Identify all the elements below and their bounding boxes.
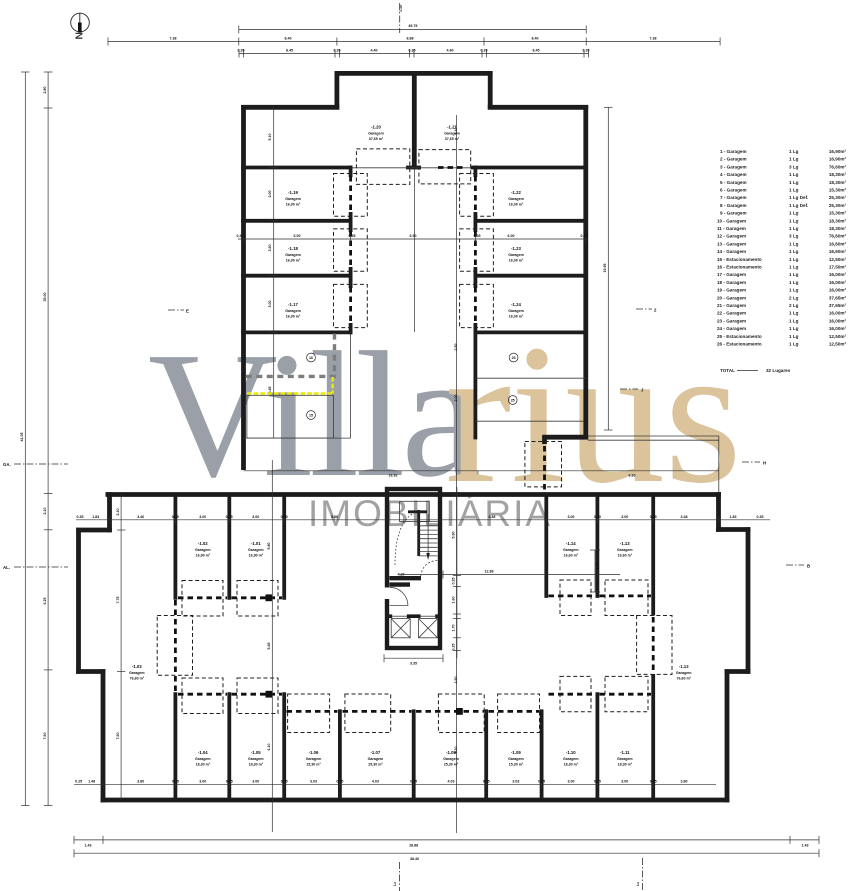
svg-text:16,00m²: 16,00m²	[829, 311, 847, 316]
svg-text:3.00: 3.00	[252, 779, 259, 783]
svg-text:7.60: 7.60	[116, 733, 120, 740]
svg-text:18 - Garagem: 18 - Garagem	[717, 280, 746, 285]
svg-text:12,50m²: 12,50m²	[829, 257, 847, 262]
svg-text:Garagem: Garagem	[368, 132, 384, 136]
svg-text:4.40: 4.40	[447, 49, 454, 53]
svg-text:0.35: 0.35	[226, 515, 233, 519]
svg-text:Garagem: Garagem	[443, 757, 459, 761]
svg-text:6.80: 6.80	[629, 474, 636, 478]
svg-text:8.45: 8.45	[533, 49, 540, 53]
svg-text:1 - Garagem: 1 - Garagem	[720, 149, 747, 154]
svg-text:4.03: 4.03	[448, 779, 455, 783]
svg-text:37,65 m²: 37,65 m²	[369, 137, 384, 141]
svg-text:1 Lg: 1 Lg	[789, 226, 799, 231]
svg-text:0.35: 0.35	[481, 49, 488, 53]
svg-text:18,30 m²: 18,30 m²	[249, 763, 264, 767]
svg-text:1 Lg: 1 Lg	[789, 180, 799, 185]
svg-text:1 Lg: 1 Lg	[789, 318, 799, 323]
svg-text:16,00 m²: 16,00 m²	[509, 259, 524, 263]
svg-text:0.35: 0.35	[594, 779, 601, 783]
svg-text:-1.18: -1.18	[288, 246, 298, 251]
svg-text:Garagem: Garagem	[195, 757, 211, 761]
svg-text:3.00: 3.00	[621, 779, 628, 783]
svg-text:16,00m²: 16,00m²	[829, 318, 847, 323]
svg-text:Garagem: Garagem	[508, 253, 524, 257]
svg-text:N: N	[73, 32, 85, 40]
svg-text:GA.: GA.	[3, 462, 11, 467]
svg-text:16,60 m²: 16,60 m²	[618, 554, 633, 558]
svg-text:2.50: 2.50	[454, 677, 458, 684]
svg-text:3.00: 3.00	[268, 191, 272, 198]
svg-text:16,00 m²: 16,00 m²	[509, 203, 524, 207]
svg-text:-1.11: -1.11	[620, 750, 630, 755]
svg-text:-1.09: -1.09	[511, 750, 521, 755]
svg-text:15,30 m²: 15,30 m²	[306, 763, 321, 767]
svg-text:41.05: 41.05	[20, 433, 24, 442]
svg-text:16,00 m²: 16,00 m²	[286, 203, 301, 207]
svg-text:3.00: 3.00	[568, 515, 575, 519]
svg-text:1 Lg: 1 Lg	[789, 272, 799, 277]
svg-text:18,30 m²: 18,30 m²	[564, 763, 579, 767]
svg-text:76,60m²: 76,60m²	[829, 164, 847, 169]
svg-text:0.35: 0.35	[336, 779, 343, 783]
svg-text:3 - Garagem: 3 - Garagem	[720, 164, 747, 169]
svg-text:1.48: 1.48	[88, 779, 95, 783]
svg-text:6.10: 6.10	[454, 747, 458, 754]
svg-text:16: 16	[309, 356, 313, 360]
svg-text:IMOBILIÁRIA: IMOBILIÁRIA	[308, 493, 552, 534]
svg-text:2.00: 2.00	[454, 395, 458, 402]
svg-text:11 - Garagem: 11 - Garagem	[717, 226, 746, 231]
svg-text:-1.24: -1.24	[511, 302, 521, 307]
svg-text:Garagem: Garagem	[129, 671, 145, 675]
svg-text:8.40: 8.40	[532, 37, 539, 41]
svg-text:1 Lg: 1 Lg	[789, 288, 799, 293]
svg-text:-1.12: -1.12	[679, 664, 689, 669]
svg-text:-1.07: -1.07	[371, 750, 381, 755]
svg-text:3.00: 3.00	[199, 779, 206, 783]
svg-text:12.88: 12.88	[485, 570, 494, 574]
svg-text:19 - Garagem: 19 - Garagem	[717, 288, 746, 293]
svg-text:24 - Garagem: 24 - Garagem	[717, 326, 746, 331]
svg-text:-1.22: -1.22	[511, 190, 521, 195]
svg-text:-1.06: -1.06	[309, 750, 319, 755]
svg-text:16 - Estacionamento: 16 - Estacionamento	[717, 265, 762, 270]
svg-text:7 - Garagem: 7 - Garagem	[720, 195, 747, 200]
svg-text:15: 15	[309, 414, 313, 418]
svg-text:Garagem: Garagem	[563, 757, 579, 761]
svg-text:4.03: 4.03	[372, 779, 379, 783]
svg-text:TOTAL: TOTAL	[720, 368, 735, 373]
svg-text:0.25: 0.25	[452, 644, 456, 651]
svg-text:-1.13: -1.13	[620, 541, 630, 546]
svg-text:49.75: 49.75	[408, 24, 417, 28]
svg-text:25: 25	[511, 399, 515, 403]
svg-text:15,30 m²: 15,30 m²	[509, 763, 524, 767]
svg-text:16.92: 16.92	[389, 474, 398, 478]
svg-text:76,60m²: 76,60m²	[829, 234, 847, 239]
svg-text:1.83: 1.83	[730, 515, 737, 519]
svg-text:8.88: 8.88	[407, 37, 414, 41]
svg-text:H: H	[763, 461, 766, 466]
svg-text:6.00: 6.00	[294, 234, 301, 238]
svg-text:Garagem: Garagem	[368, 757, 384, 761]
svg-text:Garagem: Garagem	[285, 197, 301, 201]
svg-text:E: E	[186, 309, 189, 314]
svg-text:Garagem: Garagem	[248, 757, 264, 761]
svg-text:0.35: 0.35	[410, 779, 417, 783]
svg-text:3.03: 3.03	[512, 779, 519, 783]
svg-text:6.25: 6.25	[43, 598, 47, 605]
svg-text:3.60: 3.60	[268, 245, 272, 252]
svg-text:-1.01: -1.01	[251, 541, 261, 546]
svg-text:1 Lg: 1 Lg	[789, 326, 799, 331]
svg-text:5.10: 5.10	[268, 134, 272, 141]
svg-text:76,60 m²: 76,60 m²	[130, 677, 145, 681]
svg-text:7.75: 7.75	[116, 597, 120, 604]
svg-text:6 - Garagem: 6 - Garagem	[720, 188, 747, 193]
svg-text:0.35: 0.35	[581, 234, 588, 238]
svg-text:Garagem: Garagem	[508, 197, 524, 201]
svg-text:3.00: 3.00	[199, 515, 206, 519]
svg-text:1 Lg: 1 Lg	[789, 342, 799, 347]
svg-text:37,65 m²: 37,65 m²	[445, 137, 460, 141]
svg-text:8 - Garagem: 8 - Garagem	[720, 203, 747, 208]
svg-text:0.35: 0.35	[349, 234, 356, 238]
svg-text:3.00: 3.00	[621, 515, 628, 519]
svg-text:1 Lg: 1 Lg	[789, 188, 799, 193]
svg-text:15.95: 15.95	[603, 264, 607, 273]
svg-text:-1.02: -1.02	[198, 541, 208, 546]
svg-text:2.80: 2.80	[43, 87, 47, 94]
svg-text:2 - Garagem: 2 - Garagem	[720, 157, 747, 162]
svg-text:23 - Garagem: 23 - Garagem	[717, 318, 746, 323]
svg-text:12 - Garagem: 12 - Garagem	[717, 234, 746, 239]
svg-text:3.35: 3.35	[410, 662, 417, 666]
svg-text:1 Lg: 1 Lg	[789, 280, 799, 285]
svg-text:0.35: 0.35	[281, 515, 288, 519]
svg-text:2.50: 2.50	[454, 344, 458, 351]
svg-text:17,50m²: 17,50m²	[829, 265, 847, 270]
svg-text:3.46: 3.46	[137, 515, 144, 519]
svg-text:Garagem: Garagem	[508, 309, 524, 313]
svg-text:1 Lg: 1 Lg	[789, 172, 799, 177]
svg-text:1 Lg: 1 Lg	[789, 211, 799, 216]
svg-text:7.60: 7.60	[43, 733, 47, 740]
svg-text:16,60m²: 16,60m²	[829, 241, 847, 246]
svg-text:Garagem: Garagem	[195, 548, 211, 552]
svg-text:28.88: 28.88	[409, 844, 418, 848]
svg-text:26: 26	[512, 356, 516, 360]
svg-text:25,30m²: 25,30m²	[829, 203, 847, 208]
svg-text:1 Lg: 1 Lg	[789, 157, 799, 162]
svg-text:37,65m²: 37,65m²	[829, 295, 847, 300]
svg-text:13 - Garagem: 13 - Garagem	[717, 241, 746, 246]
svg-text:1 Lg: 1 Lg	[789, 334, 799, 339]
svg-text:-1.10: -1.10	[566, 750, 576, 755]
svg-text:0.35: 0.35	[474, 234, 481, 238]
svg-text:0.35: 0.35	[650, 779, 657, 783]
svg-text:1.60: 1.60	[452, 597, 456, 604]
svg-text:-1.04: -1.04	[198, 750, 208, 755]
svg-text:16,90 m²: 16,90 m²	[249, 554, 264, 558]
svg-text:3.80: 3.80	[137, 779, 144, 783]
svg-text:Garagem: Garagem	[285, 309, 301, 313]
svg-text:3.48: 3.48	[488, 515, 495, 519]
svg-text:1 Lg Def.: 1 Lg Def.	[789, 195, 808, 200]
svg-text:0.35: 0.35	[757, 515, 764, 519]
svg-text:Lc: Lc	[636, 882, 640, 886]
svg-text:1.43: 1.43	[85, 844, 92, 848]
svg-text:3.00: 3.00	[252, 515, 259, 519]
svg-text:2 Lg: 2 Lg	[789, 295, 799, 300]
svg-text:20 - Garagem: 20 - Garagem	[717, 295, 746, 300]
svg-text:16,60 m²: 16,60 m²	[564, 554, 579, 558]
svg-text:Garagem: Garagem	[306, 757, 322, 761]
svg-text:9 - Garagem: 9 - Garagem	[720, 211, 747, 216]
svg-text:16,00m²: 16,00m²	[829, 280, 847, 285]
svg-text:0.35: 0.35	[409, 49, 416, 53]
svg-text:16,90 m²: 16,90 m²	[196, 554, 211, 558]
svg-text:1.70: 1.70	[452, 625, 456, 632]
svg-text:1 Lg: 1 Lg	[789, 218, 799, 223]
svg-text:rius: rius	[445, 304, 741, 525]
svg-text:3.80: 3.80	[681, 779, 688, 783]
svg-text:3.00: 3.00	[568, 779, 575, 783]
svg-text:15,30m²: 15,30m²	[829, 188, 847, 193]
svg-text:5.45: 5.45	[267, 643, 271, 650]
svg-text:Lc: Lc	[393, 882, 397, 886]
svg-text:2 Lg: 2 Lg	[789, 303, 799, 308]
svg-text:18,30 m²: 18,30 m²	[618, 763, 633, 767]
svg-text:0.35: 0.35	[650, 515, 657, 519]
svg-text:25,30 m²: 25,30 m²	[444, 763, 459, 767]
svg-text:1 Lg: 1 Lg	[789, 249, 799, 254]
svg-text:0.35: 0.35	[172, 779, 179, 783]
svg-text:Villa: Villa	[148, 315, 479, 514]
svg-text:3.48: 3.48	[681, 515, 688, 519]
svg-text:7.38: 7.38	[650, 37, 657, 41]
svg-text:0.35: 0.35	[538, 779, 545, 783]
svg-text:18,30m²: 18,30m²	[829, 226, 847, 231]
svg-text:16,90m²: 16,90m²	[829, 149, 847, 154]
svg-text:6.10: 6.10	[267, 744, 271, 751]
svg-text:5.88: 5.88	[331, 515, 338, 519]
svg-text:0.25: 0.25	[75, 779, 82, 783]
svg-text:22 - Garagem: 22 - Garagem	[717, 311, 746, 316]
svg-text:12,50m²: 12,50m²	[829, 334, 847, 339]
svg-text:10 - Garagem: 10 - Garagem	[717, 218, 746, 223]
svg-text:-1.05: -1.05	[251, 750, 261, 755]
svg-text:16,00m²: 16,00m²	[829, 272, 847, 277]
svg-text:0.35: 0.35	[237, 234, 244, 238]
svg-text:18,30m²: 18,30m²	[829, 180, 847, 185]
svg-text:16,00 m²: 16,00 m²	[286, 259, 301, 263]
svg-text:37,65m²: 37,65m²	[829, 303, 847, 308]
svg-text:21 - Garagem: 21 - Garagem	[717, 303, 746, 308]
svg-text:Garagem: Garagem	[617, 757, 633, 761]
svg-text:16,00 m²: 16,00 m²	[509, 315, 524, 319]
svg-text:0.35: 0.35	[226, 779, 233, 783]
svg-text:1.43: 1.43	[802, 844, 809, 848]
svg-text:3 Lg: 3 Lg	[789, 164, 799, 169]
svg-text:14 - Garagem: 14 - Garagem	[717, 249, 746, 254]
svg-text:1 Lg: 1 Lg	[789, 257, 799, 262]
svg-text:7.38: 7.38	[170, 37, 177, 41]
svg-text:1.66: 1.66	[595, 563, 599, 570]
svg-text:15,30m²: 15,30m²	[829, 211, 847, 216]
svg-text:2.10: 2.10	[116, 509, 120, 516]
svg-text:8.40: 8.40	[285, 37, 292, 41]
svg-text:5.90: 5.90	[452, 532, 456, 539]
svg-text:1 Lg: 1 Lg	[789, 265, 799, 270]
svg-text:AL.: AL.	[3, 565, 10, 570]
svg-text:16,60m²: 16,60m²	[829, 249, 847, 254]
svg-text:26 - Estacionamento: 26 - Estacionamento	[717, 342, 762, 347]
svg-text:5 - Garagem: 5 - Garagem	[720, 180, 747, 185]
svg-text:16,90m²: 16,90m²	[829, 157, 847, 162]
svg-text:18,30m²: 18,30m²	[829, 172, 847, 177]
svg-text:76,60 m²: 76,60 m²	[677, 677, 692, 681]
svg-text:8.45: 8.45	[286, 49, 293, 53]
svg-text:16,00m²: 16,00m²	[829, 288, 847, 293]
svg-text:0.35: 0.35	[334, 49, 341, 53]
svg-text:Garagem: Garagem	[676, 671, 692, 675]
svg-text:25,30 m²: 25,30 m²	[368, 763, 383, 767]
svg-text:Garagem: Garagem	[285, 253, 301, 257]
svg-text:12,50m²: 12,50m²	[829, 342, 847, 347]
svg-text:1.83: 1.83	[92, 515, 99, 519]
svg-text:Garagem: Garagem	[563, 548, 579, 552]
svg-text:25 - Estacionamento: 25 - Estacionamento	[717, 334, 762, 339]
svg-text:15 - Estacionamento: 15 - Estacionamento	[717, 257, 762, 262]
svg-text:1.10: 1.10	[399, 5, 403, 12]
svg-text:B: B	[807, 564, 810, 569]
svg-text:0.35: 0.35	[483, 779, 490, 783]
svg-text:0.35: 0.35	[77, 515, 84, 519]
svg-text:1 Lg: 1 Lg	[789, 311, 799, 316]
svg-text:16,00 m²: 16,00 m²	[286, 315, 301, 319]
svg-text:-1.20: -1.20	[371, 125, 381, 130]
svg-text:0.25: 0.25	[452, 578, 456, 585]
svg-text:25,30m²: 25,30m²	[829, 195, 847, 200]
svg-text:3 Lg: 3 Lg	[789, 234, 799, 239]
svg-text:18,30 m²: 18,30 m²	[196, 763, 211, 767]
svg-text:-1.23: -1.23	[511, 246, 521, 251]
svg-text:32 Lugares: 32 Lugares	[766, 368, 791, 373]
svg-text:4 - Garagem: 4 - Garagem	[720, 172, 747, 177]
svg-text:Garagem: Garagem	[508, 757, 524, 761]
svg-text:5.10: 5.10	[454, 128, 458, 135]
svg-text:-1.14: -1.14	[566, 541, 576, 546]
svg-text:38.40: 38.40	[410, 857, 419, 861]
svg-text:-1.03: -1.03	[132, 664, 142, 669]
svg-text:1 Lg: 1 Lg	[789, 149, 799, 154]
svg-text:Garagem: Garagem	[617, 548, 633, 552]
svg-text:0.35: 0.35	[238, 49, 245, 53]
svg-text:-1.19: -1.19	[288, 190, 298, 195]
svg-text:6.90: 6.90	[410, 234, 417, 238]
svg-text:1 Lg Def.: 1 Lg Def.	[789, 203, 808, 208]
svg-text:16,00m²: 16,00m²	[829, 326, 847, 331]
svg-text:2.10: 2.10	[43, 508, 47, 515]
svg-text:Garagem: Garagem	[248, 548, 264, 552]
svg-text:6.00: 6.00	[508, 234, 515, 238]
svg-text:4.40: 4.40	[371, 49, 378, 53]
svg-text:17 - Garagem: 17 - Garagem	[717, 272, 746, 277]
svg-text:0.35: 0.35	[583, 49, 590, 53]
svg-text:1 Lg: 1 Lg	[789, 241, 799, 246]
svg-text:5.80: 5.80	[267, 543, 271, 550]
svg-text:18,30m²: 18,30m²	[829, 218, 847, 223]
svg-text:0.35: 0.35	[172, 515, 179, 519]
svg-text:-1.17: -1.17	[288, 302, 298, 307]
svg-text:0.35: 0.35	[594, 515, 601, 519]
svg-text:3.03: 3.03	[310, 779, 317, 783]
svg-text:3.00: 3.00	[268, 301, 272, 308]
svg-text:0.35: 0.35	[281, 779, 288, 783]
svg-text:35.00: 35.00	[43, 293, 47, 302]
